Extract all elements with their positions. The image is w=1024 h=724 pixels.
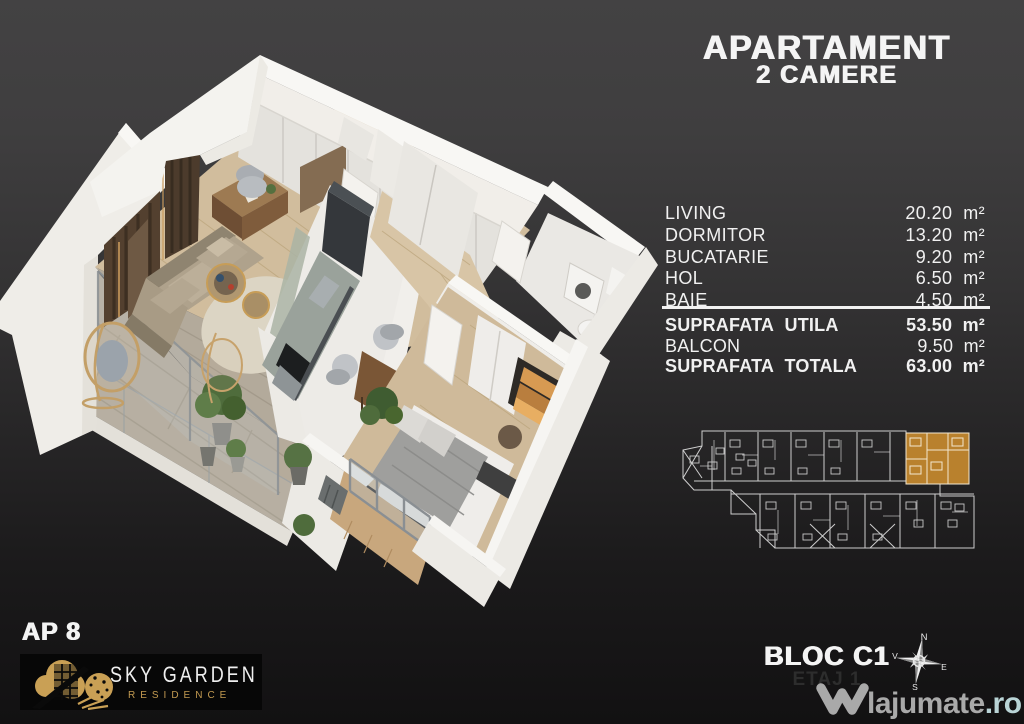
svg-text:E: E (941, 662, 947, 672)
svg-text:N: N (921, 632, 928, 643)
svg-text:S: S (912, 682, 918, 692)
svg-text:V: V (892, 651, 898, 661)
